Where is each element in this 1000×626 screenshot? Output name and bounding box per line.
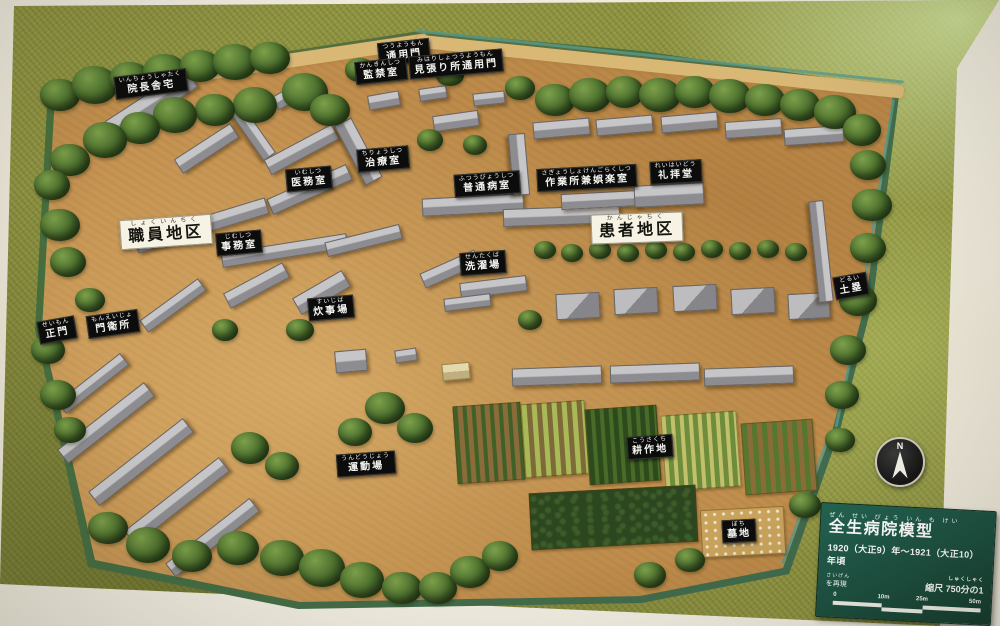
scale-tick: 50m [969, 599, 981, 606]
map-label: どるい土塁 [832, 272, 869, 301]
map-label: ぼち墓地 [721, 519, 756, 544]
map-label: さぎょうしょけんごらくしつ作業所兼娯楽室 [536, 164, 637, 192]
label-text: 炊事場 [313, 304, 350, 318]
compass-rose: N [875, 437, 925, 487]
north-label: N [877, 441, 923, 451]
plaque-recreated: さいげん を再現 [825, 571, 850, 589]
map-label: もんえいじょ門衛所 [86, 309, 141, 339]
label-text: 患者地区 [599, 221, 676, 241]
map-label: せんたくば洗濯場 [459, 250, 506, 276]
area-label: かんじゃちく患者地区 [590, 211, 683, 244]
museum-model-photo: いんちょうしゃたく院長舎宅つうようもん通用門みはりしょつうようもん見張り所通用門… [0, 0, 1000, 626]
scale-tick: 25m [916, 596, 928, 603]
label-text: 治療室 [362, 155, 404, 170]
plaque-recreated-text: を再現 [826, 580, 847, 588]
plaque-scale-bar: 0 10m 25m 50m [832, 592, 981, 620]
map-label: せいもん正門 [36, 315, 77, 344]
map-label: かんきんしつ監禁室 [354, 57, 408, 85]
label-text: 医務室 [291, 175, 328, 189]
label-text: 事務室 [221, 239, 258, 253]
map-label: いむしつ医務室 [285, 166, 333, 193]
map-label: ふつうびょうしつ普通病室 [453, 170, 520, 198]
label-text: 耕作地 [632, 443, 669, 456]
label-text: 墓地 [727, 528, 752, 540]
map-label: すいじば炊事場 [307, 295, 355, 322]
label-text: 洗濯場 [465, 259, 502, 272]
map-label: じむしつ事務室 [215, 230, 263, 257]
map-label: こうさくち耕作地 [626, 434, 673, 460]
area-label: しょくいんちく職員地区 [119, 214, 213, 250]
scale-tick: 0 [833, 592, 837, 598]
map-label: いんちょうしゃたく院長舎宅 [113, 68, 188, 100]
label-text: 運動場 [341, 460, 390, 474]
map-label: うんどうじょう運動場 [336, 450, 396, 477]
plaque-recreated-furigana: さいげん [826, 571, 850, 579]
scale-tick: 10m [877, 594, 889, 601]
plaque-scale-text: 縮尺 750分の1 [925, 583, 984, 596]
map-label: れいはいどう礼拝堂 [649, 159, 702, 185]
label-text: 礼拝堂 [655, 168, 698, 181]
map-label: ちりょうしつ治療室 [356, 145, 409, 172]
plaque-scale: しゅくしゃく 縮尺 750分の1 [925, 574, 984, 597]
north-arrow-icon [888, 450, 912, 481]
info-plaque: ぜん せい びょう いん も けい 全生病院模型 1920（大正9）年～1921… [815, 502, 997, 626]
